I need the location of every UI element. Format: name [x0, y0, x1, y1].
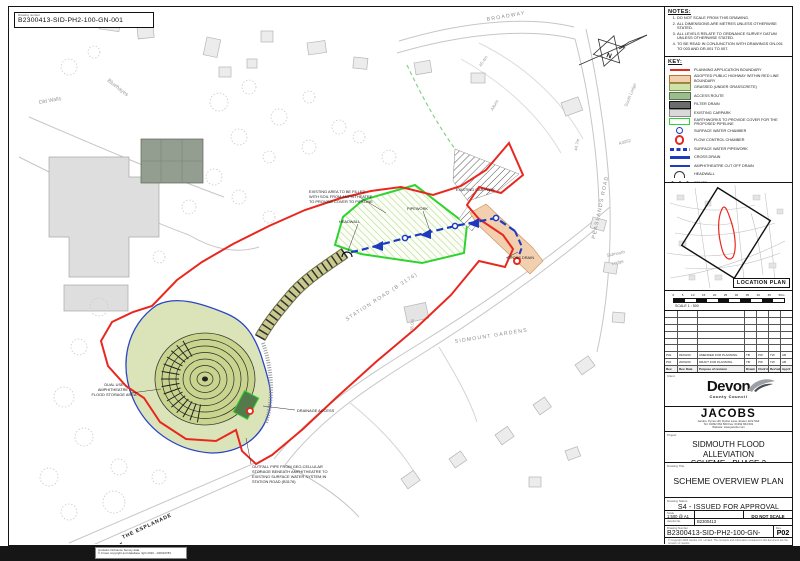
key-item: GRASSED (UNDER GRASSCRETE) [668, 83, 789, 91]
legend-green-outline-icon [669, 118, 690, 125]
svg-text:44.7m: 44.7m [573, 138, 580, 151]
consultant-logo-box: JACOBS Jacobs, Pynes Hill, Rydon Lane, E… [665, 407, 792, 432]
project-name: SIDMOUTH FLOOD ALLEVIATION SCHEME - PHAS… [668, 440, 789, 463]
do-not-scale-cell: DO NOT SCALE [744, 511, 792, 518]
client-label: Client [667, 374, 675, 378]
north-arrow-icon: N [579, 32, 647, 71]
client-logo-box: Client Devon County Council [665, 373, 792, 407]
key-item: ADOPTED PUBLIC HIGHWAY WITHIN RED LINE B… [668, 74, 789, 82]
scale-bar-ticks: 05 1015 2025 3035 4045 50m [673, 293, 785, 297]
revision-row-empty [665, 325, 792, 332]
location-plan-label: LOCATION PLAN [733, 278, 790, 288]
key-item: HEADWALL [668, 170, 789, 178]
revision-row-empty [665, 332, 792, 339]
drawing-number-cell: Drawing Number B2300413-SID-PH2-100-GN-0… [665, 526, 774, 537]
title-block-panel: NOTES: DO NOT SCALE FROM THIS DRAWING. A… [664, 7, 792, 544]
notes-list: DO NOT SCALE FROM THIS DRAWING. ALL DIME… [668, 16, 789, 51]
legend-grey-fill-icon [669, 109, 691, 117]
svg-text:Old Walls: Old Walls [38, 96, 62, 106]
jacobs-no-row: Jacobs No. B2300413 [665, 519, 792, 526]
drawing-number-box-value: B2300413-SID-PH2-100-GN-001 [18, 17, 150, 25]
drawing-title: SCHEME OVERVIEW PLAN [668, 476, 789, 486]
plan-extent-rect [682, 188, 771, 279]
drawing-sheet: N Old Walls Bluehayes BROADWAY 45.4m Alt… [8, 6, 793, 546]
legend-speckle-fill-icon [669, 101, 691, 109]
svg-text:A3052: A3052 [618, 138, 632, 146]
devon-swoosh-icon [746, 376, 776, 394]
drawing-status-label: Drawing Status [667, 499, 687, 503]
note-item: DO NOT SCALE FROM THIS DRAWING. [677, 16, 789, 21]
svg-text:Altura: Altura [489, 99, 499, 112]
key-item: SURFACE WATER PIPEWORK [668, 145, 789, 153]
tennis-court-block [141, 139, 203, 183]
key-item: FILTER DRAIN [668, 101, 789, 109]
revision-row-empty [665, 345, 792, 352]
project-label: Project [667, 433, 676, 437]
devon-logo: Devon [707, 380, 750, 394]
legend-green-fill-icon [669, 92, 691, 100]
scale-cell: Scale 1:500 @ A1 [665, 511, 695, 518]
bottom-scan-bar: Contains Ordnance Survey data © Crown co… [0, 546, 800, 561]
legend-red-line-icon [670, 69, 690, 72]
svg-text:TO PROVIDE COVER TO PIPELINE: TO PROVIDE COVER TO PIPELINE [309, 199, 373, 204]
revision-row-empty [665, 318, 792, 325]
svg-text:Bluehayes: Bluehayes [106, 78, 130, 98]
scale-spacer-cell [695, 511, 744, 518]
svg-text:South Lodge: South Lodge [623, 82, 637, 107]
esplanade-arrow [112, 542, 122, 544]
key-item: EXISTING CARPARK [668, 109, 789, 117]
drawing-title-box: Drawing Title SCHEME OVERVIEW PLAN [665, 463, 792, 498]
drawing-status: S4 - ISSUED FOR APPROVAL [668, 504, 789, 511]
scale-caption: SCALE 1 : 500 [669, 304, 788, 308]
key-item: AMPHITHEATRE CUT OFF DRAIN [668, 162, 789, 170]
map-area: N Old Walls Bluehayes BROADWAY 45.4m Alt… [9, 7, 664, 544]
scale-row: Scale 1:500 @ A1 DO NOT SCALE [665, 511, 792, 519]
key-item: ACCESS ROUTE [668, 92, 789, 100]
key-section: KEY: PLANNING APPLICATION BOUNDARY ADOPT… [665, 57, 792, 183]
revision-cell: Rev. P02 [774, 526, 792, 537]
legend-blue-chamber-icon [676, 127, 684, 135]
note-item: ALL LEVELS RELATE TO ORDNANCE SURVEY DAT… [677, 32, 789, 41]
key-item: CROSS DRAIN [668, 154, 789, 162]
svg-text:EXISTING CAR PARK: EXISTING CAR PARK [456, 187, 495, 192]
drawing-number-box: Drawing number B2300413-SID-PH2-100-GN-0… [14, 12, 154, 28]
svg-text:PIPEWORK: PIPEWORK [407, 206, 428, 211]
revision-row-empty [665, 311, 792, 318]
revision-header-row: Rev.Rev. Date Purpose of revisionDrawn C… [665, 366, 792, 372]
location-plan-section: LOCATION PLAN [665, 183, 792, 291]
svg-text:CROSS DRAIN: CROSS DRAIN [507, 255, 534, 260]
scale-bar [673, 298, 785, 303]
jacobs-no-cell: B2300413 [695, 519, 792, 525]
project-box: Project SIDMOUTH FLOOD ALLEVIATION SCHEM… [665, 432, 792, 463]
legend-blue-thick-icon [670, 156, 690, 159]
jacobs-address: Jacobs, Pynes Hill, Rydon Lane, Exeter, … [698, 420, 760, 430]
key-item: EARTHWORKS TO PROVIDE COVER FOR THE PROP… [668, 118, 789, 126]
legend-headwall-icon [674, 171, 685, 178]
legend-peach-fill-icon [669, 75, 691, 83]
notes-section: NOTES: DO NOT SCALE FROM THIS DRAWING. A… [665, 7, 792, 57]
scheme-plan-svg: N Old Walls Bluehayes BROADWAY 45.4m Alt… [9, 7, 664, 544]
key-item: SURFACE WATER CHAMBER [668, 127, 789, 135]
existing-green-dashed-line [407, 65, 461, 157]
legend-lightgreen-fill-icon [669, 83, 691, 91]
jacobs-no-label-cell: Jacobs No. [665, 519, 695, 525]
drawing-status-box: Drawing Status S4 - ISSUED FOR APPROVAL [665, 498, 792, 511]
note-item: TO BE READ IN CONJUNCTION WITH DRAWINGS … [677, 42, 789, 51]
svg-text:DRAINAGE ACCESS: DRAINAGE ACCESS [297, 408, 335, 413]
scheme-boundary-mini [719, 207, 736, 259]
svg-text:45.4m: 45.4m [478, 54, 489, 67]
legend-blue-dashed-icon [670, 148, 690, 151]
key-title: KEY: [668, 59, 789, 65]
revision-row-empty [665, 339, 792, 346]
drawing-number-row: Drawing Number B2300413-SID-PH2-100-GN-0… [665, 526, 792, 538]
legend-red-chamber-icon [675, 135, 685, 145]
note-item: ALL DIMENSIONS ARE METRES UNLESS OTHERWI… [677, 22, 789, 31]
legend-blue-thin-icon [670, 165, 690, 167]
revision-row: P0120/03/20 DRAFT FOR PLANNINGTB PWTW AB [665, 359, 792, 366]
svg-text:HEADWALL: HEADWALL [339, 219, 361, 224]
svg-text:SIDMOUNT GARDENS: SIDMOUNT GARDENS [454, 327, 528, 344]
key-item: PLANNING APPLICATION BOUNDARY [668, 66, 789, 74]
access-route [260, 253, 345, 338]
revision-table: P0203/04/20 AMENDED FOR PLANNINGTB PWTW … [665, 311, 792, 373]
key-item: FLOW CONTROL CHAMBER [668, 135, 789, 145]
scale-bar-section: 05 1015 2025 3035 4045 50m SCALE 1 : 500 [665, 291, 792, 311]
drawing-title-label: Drawing Title [667, 464, 684, 468]
os-copyright-box: Contains Ordnance Survey data © Crown co… [95, 547, 187, 559]
svg-text:STATION ROAD (B3176): STATION ROAD (B3176) [252, 479, 296, 484]
copyright-small-print: © Copyright 2020 Jacobs U.K. Limited. Th… [665, 538, 792, 544]
location-plan-map [665, 183, 791, 290]
svg-text:FLOOD STORAGE AREA: FLOOD STORAGE AREA [92, 392, 137, 397]
revision-row: P0203/04/20 AMENDED FOR PLANNINGTB PWTW … [665, 352, 792, 359]
